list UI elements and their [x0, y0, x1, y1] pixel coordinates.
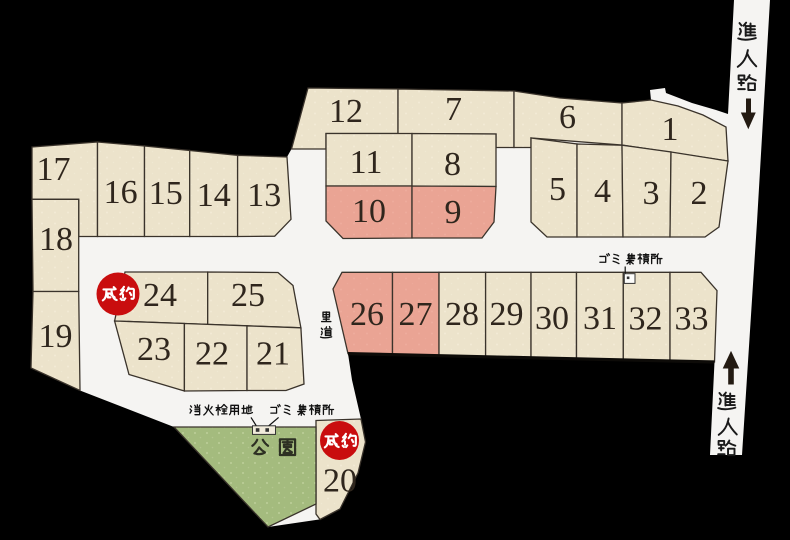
svg-text:3: 3 — [643, 175, 660, 212]
svg-text:9: 9 — [445, 194, 462, 231]
svg-text:1: 1 — [662, 111, 679, 148]
svg-text:12: 12 — [329, 93, 363, 130]
svg-text:21: 21 — [256, 336, 290, 373]
svg-text:6: 6 — [559, 99, 576, 136]
svg-text:14: 14 — [197, 177, 231, 214]
svg-text:22: 22 — [195, 336, 229, 373]
svg-text:20: 20 — [323, 463, 357, 500]
svg-text:11: 11 — [350, 144, 383, 181]
svg-text:18: 18 — [39, 221, 73, 258]
svg-text:19: 19 — [39, 318, 73, 355]
svg-text:28: 28 — [445, 296, 479, 333]
svg-text:26: 26 — [350, 296, 384, 333]
svg-text:8: 8 — [444, 146, 461, 183]
svg-text:15: 15 — [149, 175, 183, 212]
svg-text:29: 29 — [490, 296, 524, 333]
svg-text:30: 30 — [535, 300, 569, 337]
svg-text:13: 13 — [247, 177, 281, 214]
svg-text:33: 33 — [675, 301, 709, 338]
svg-text:2: 2 — [691, 175, 708, 212]
svg-text:5: 5 — [549, 171, 566, 208]
svg-text:7: 7 — [445, 91, 462, 128]
svg-text:27: 27 — [399, 296, 433, 333]
svg-text:25: 25 — [231, 277, 265, 314]
svg-text:23: 23 — [137, 331, 171, 368]
svg-text:4: 4 — [594, 173, 611, 210]
svg-text:24: 24 — [143, 277, 177, 314]
svg-text:31: 31 — [583, 300, 617, 337]
svg-text:10: 10 — [352, 193, 386, 230]
svg-text:17: 17 — [37, 151, 71, 188]
svg-text:32: 32 — [629, 301, 663, 338]
svg-text:16: 16 — [104, 174, 138, 211]
